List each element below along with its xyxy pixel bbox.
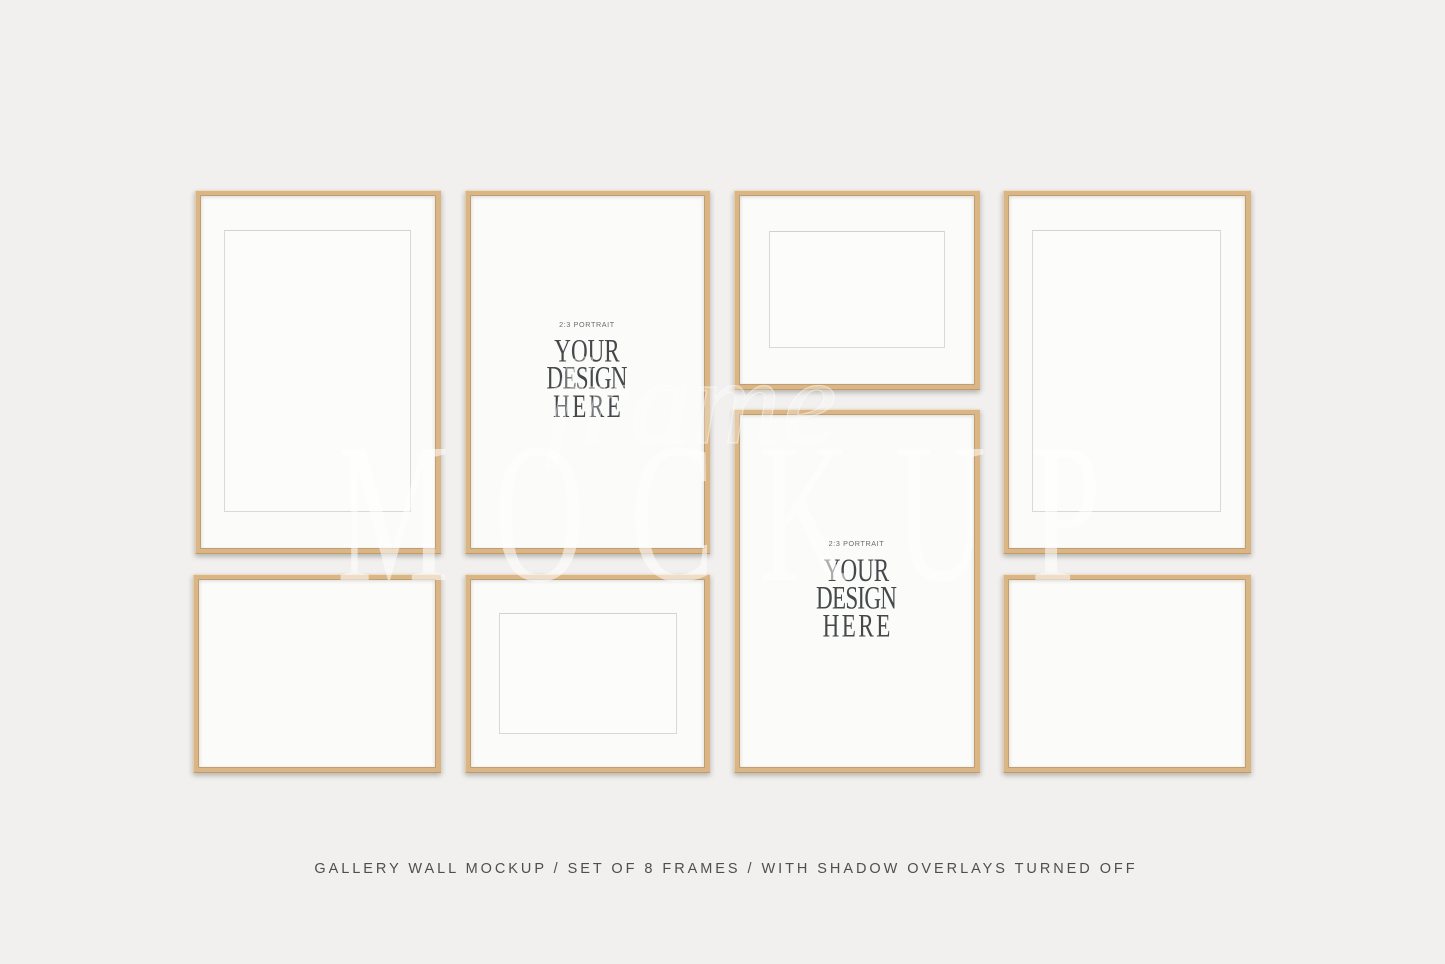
- svg-text:2:3 PORTRAIT: 2:3 PORTRAIT: [559, 320, 615, 329]
